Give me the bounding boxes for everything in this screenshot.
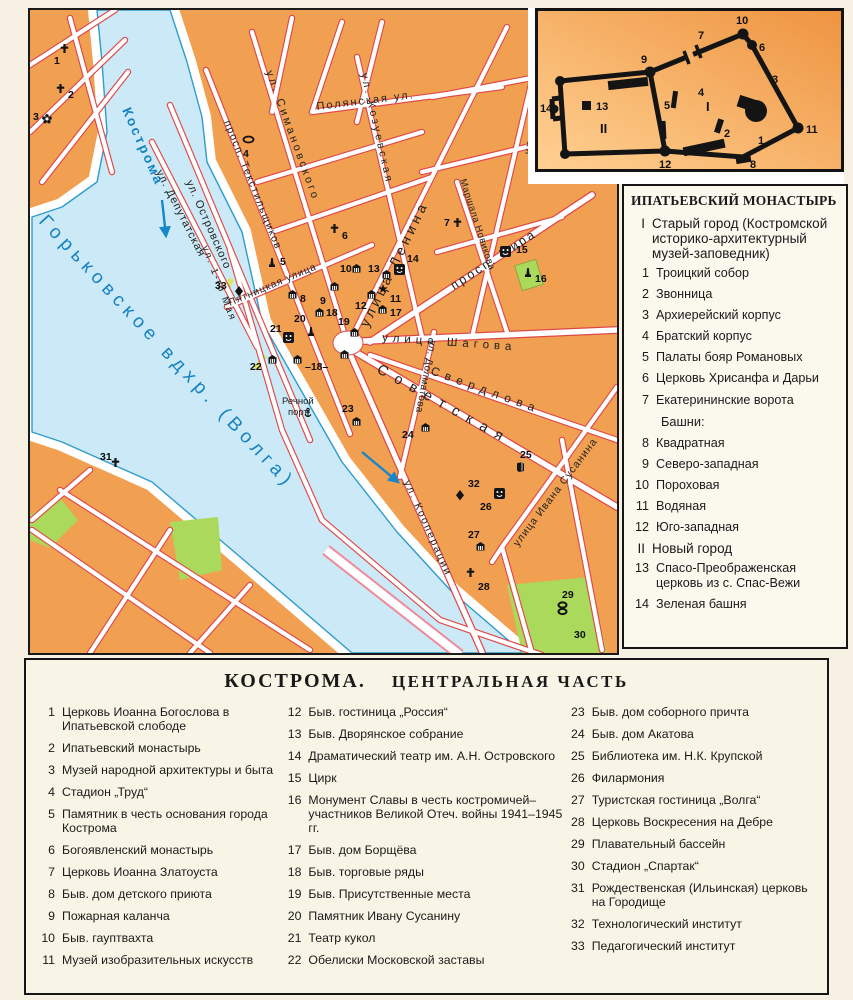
port-label-line1: Речной [282, 396, 314, 407]
svg-text:20: 20 [294, 313, 306, 325]
item-number: 19 [282, 887, 301, 901]
legend-item: 24Быв. дом Акатова [566, 727, 817, 741]
item-text: Быв. Дворянское собрание [308, 727, 463, 741]
legend-item: 9Северо-западная [629, 457, 839, 472]
monastery-items-3: 13Спасо-Преображенская церковь из с. Спа… [629, 561, 839, 611]
legend-item: 22Обелиски Московской заставы [282, 953, 565, 967]
item-text: Троицкий собор [656, 266, 749, 281]
legend-item: 2Ипатьевский монастырь [36, 741, 282, 755]
legend-column-1: 1Церковь Иоанна Богослова в Ипатьевской … [36, 705, 282, 975]
legend-item: 12Юго-западная [629, 520, 839, 535]
legend-item: 21Театр кукол [282, 931, 565, 945]
item-text: Быв. гауптвахта [62, 931, 153, 945]
svg-text:28: 28 [478, 581, 490, 593]
item-number: 32 [566, 917, 585, 931]
svg-text:12: 12 [659, 159, 671, 171]
item-number: 30 [566, 859, 585, 873]
svg-text:12: 12 [355, 300, 367, 312]
item-text: Филармония [592, 771, 665, 785]
svg-text:24: 24 [402, 429, 414, 441]
legend-column-3: 23Быв. дом соборного причта24Быв. дом Ак… [566, 705, 817, 975]
legend-item: 11Водяная [629, 499, 839, 514]
monastery-items-2: 8Квадратная9Северо-западная10Пороховая11… [629, 436, 839, 535]
legend-item: 4Стадион „Труд“ [36, 785, 282, 799]
item-text: Ипатьевский монастырь [62, 741, 201, 755]
item-number: 24 [566, 727, 585, 741]
svg-text:14: 14 [407, 253, 419, 265]
item-text: Монумент Славы в честь костромичей–участ… [308, 793, 565, 835]
item-text: Библиотека им. Н.К. Крупской [592, 749, 763, 763]
svg-text:5: 5 [280, 256, 286, 268]
svg-text:1: 1 [54, 55, 60, 67]
legend-item: 10Пороховая [629, 478, 839, 493]
item-number: 10 [629, 478, 649, 493]
item-number: 11 [36, 953, 55, 967]
item-number: 21 [282, 931, 301, 945]
item-number: 12 [629, 520, 649, 535]
item-number: 2 [36, 741, 55, 755]
item-text: Пожарная каланча [62, 909, 170, 923]
item-text: Квадратная [656, 436, 725, 451]
svg-text:23: 23 [342, 403, 354, 415]
item-text: Северо-западная [656, 457, 759, 472]
item-text: Быв. Присутственные места [308, 887, 470, 901]
svg-text:4: 4 [243, 148, 249, 160]
legend-group-new-town: II Новый город [629, 541, 839, 556]
legend-item: 26Филармония [566, 771, 817, 785]
item-text: Быв. дом Акатова [592, 727, 694, 741]
item-text: Спасо-Преображенская церковь из с. Спас-… [656, 561, 839, 590]
legend-column-2: 12Быв. гостиница „Россия“13Быв. Дворянск… [282, 705, 565, 975]
svg-text:30: 30 [574, 629, 586, 641]
svg-text:II: II [600, 121, 607, 136]
item-text: Педагогический институт [592, 939, 736, 953]
svg-text:6: 6 [342, 230, 348, 242]
group-text: Старый город (Костромской историко-архит… [652, 216, 839, 261]
legend-item: 15Цирк [282, 771, 565, 785]
svg-text:32: 32 [468, 478, 480, 490]
item-text: Быв. дом детского приюта [62, 887, 212, 901]
svg-text:7: 7 [444, 217, 450, 229]
item-text: Стадион „Спартак“ [592, 859, 699, 873]
svg-text:8: 8 [300, 293, 306, 305]
item-text: Плавательный бассейн [592, 837, 726, 851]
item-number: 12 [282, 705, 301, 719]
svg-text:27: 27 [468, 529, 480, 541]
item-text: Музей изобразительных искусств [62, 953, 253, 967]
item-number: 22 [282, 953, 301, 967]
legend-item: 3Архиерейский корпус [629, 308, 839, 323]
legend-item: 7Екатерининские ворота [629, 393, 839, 408]
item-number: 5 [629, 350, 649, 365]
item-number: 3 [36, 763, 55, 777]
title-city: КОСТРОМА. [224, 670, 366, 692]
city-legend: КОСТРОМА.ЦЕНТРАЛЬНАЯ ЧАСТЬ 1Церковь Иоан… [24, 658, 829, 995]
legend-item: 13Быв. Дворянское собрание [282, 727, 565, 741]
svg-text:15: 15 [516, 244, 528, 256]
svg-text:31: 31 [100, 451, 112, 463]
item-number: 4 [36, 785, 55, 799]
item-number: 23 [566, 705, 585, 719]
svg-text:10: 10 [340, 263, 352, 275]
item-number: 25 [566, 749, 585, 763]
svg-text:I: I [706, 99, 710, 114]
legend-item: 8Быв. дом детского приюта [36, 887, 282, 901]
svg-text:6: 6 [759, 42, 765, 54]
item-text: Зеленая башня [656, 597, 747, 612]
item-text: Цирк [308, 771, 336, 785]
item-number: 1 [629, 266, 649, 281]
item-number: 16 [282, 793, 301, 835]
svg-text:33: 33 [215, 280, 227, 292]
monastery-legend-title: ИПАТЬЕВСКИЙ МОНАСТЫРЬ [631, 193, 839, 209]
legend-item: 3Музей народной архитектуры и быта [36, 763, 282, 777]
item-text: Палаты бояр Романовых [656, 350, 803, 365]
item-text: Богоявленский монастырь [62, 843, 213, 857]
svg-text:21: 21 [270, 323, 282, 335]
item-text: Туристская гостиница „Волга“ [592, 793, 761, 807]
svg-text:2: 2 [68, 89, 74, 101]
item-number: 29 [566, 837, 585, 851]
legend-item: 5Палаты бояр Романовых [629, 350, 839, 365]
legend-item: 13Спасо-Преображенская церковь из с. Спа… [629, 561, 839, 590]
item-number: 11 [629, 499, 649, 514]
item-number: 8 [36, 887, 55, 901]
legend-item: 4Братский корпус [629, 329, 839, 344]
monastery-items-1: 1Троицкий собор2Звонница3Архиерейский ко… [629, 266, 839, 407]
item-text: Юго-западная [656, 520, 739, 535]
item-number: 28 [566, 815, 585, 829]
city-legend-title: КОСТРОМА.ЦЕНТРАЛЬНАЯ ЧАСТЬ [36, 670, 817, 693]
legend-item: 20Памятник Ивану Сусанину [282, 909, 565, 923]
legend-item: 32Технологический институт [566, 917, 817, 931]
item-number: 7 [36, 865, 55, 879]
svg-text:9: 9 [320, 295, 326, 307]
item-number: 10 [36, 931, 55, 945]
item-text: Драматический театр им. А.Н. Островского [308, 749, 555, 763]
legend-item: 6Церковь Хрисанфа и Дарьи [629, 371, 839, 386]
item-number: 14 [282, 749, 301, 763]
item-text: Быв. гостиница „Россия“ [308, 705, 447, 719]
svg-text:16: 16 [535, 273, 547, 285]
legend-item: 9Пожарная каланча [36, 909, 282, 923]
svg-text:–18–: –18– [305, 361, 329, 373]
svg-text:11: 11 [390, 293, 401, 305]
item-number: 17 [282, 843, 301, 857]
svg-text:2: 2 [724, 128, 730, 140]
svg-text:26: 26 [480, 501, 492, 513]
item-text: Памятник Ивану Сусанину [308, 909, 460, 923]
item-text: Музей народной архитектуры и быта [62, 763, 273, 777]
item-number: 14 [629, 597, 649, 612]
item-text: Церковь Иоанна Богослова в Ипатьевской с… [62, 705, 282, 733]
legend-item: 1Церковь Иоанна Богослова в Ипатьевской … [36, 705, 282, 733]
legend-item: 17Быв. дом Борщёва [282, 843, 565, 857]
item-number: 4 [629, 329, 649, 344]
item-text: Памятник в честь основания города Костро… [62, 807, 282, 835]
item-number: 13 [282, 727, 301, 741]
title-part: ЦЕНТРАЛЬНАЯ ЧАСТЬ [392, 672, 629, 691]
item-number: 9 [629, 457, 649, 472]
item-text: Технологический институт [592, 917, 742, 931]
monastery-inset: 1 2 3 4 5 6 7 8 9 10 11 12 13 14 I II [528, 8, 844, 184]
svg-text:11: 11 [806, 124, 818, 136]
item-number: 18 [282, 865, 301, 879]
legend-item: 29Плавательный бассейн [566, 837, 817, 851]
item-number: 5 [36, 807, 55, 835]
item-number: 9 [36, 909, 55, 923]
item-number: 6 [36, 843, 55, 857]
svg-text:18: 18 [326, 307, 338, 319]
item-number: 2 [629, 287, 649, 302]
svg-text:5: 5 [664, 100, 670, 112]
legend-item: 11Музей изобразительных искусств [36, 953, 282, 967]
item-number: 20 [282, 909, 301, 923]
item-number: 13 [629, 561, 649, 590]
monastery-legend: ИПАТЬЕВСКИЙ МОНАСТЫРЬ I Старый город (Ко… [622, 184, 848, 649]
legend-item: 25Библиотека им. Н.К. Крупской [566, 749, 817, 763]
item-text: Архиерейский корпус [656, 308, 781, 323]
legend-item: 31Рождественская (Ильинская) церковь на … [566, 881, 817, 909]
group-number: II [629, 541, 645, 556]
svg-text:10: 10 [736, 15, 748, 27]
svg-text:1: 1 [758, 135, 764, 147]
legend-item: 6Богоявленский монастырь [36, 843, 282, 857]
legend-item: 8Квадратная [629, 436, 839, 451]
legend-item: 33Педагогический институт [566, 939, 817, 953]
svg-text:7: 7 [698, 30, 704, 42]
item-text: Рождественская (Ильинская) церковь на Го… [592, 881, 817, 909]
city-legend-columns: 1Церковь Иоанна Богослова в Ипатьевской … [36, 705, 817, 975]
item-text: Екатерининские ворота [656, 393, 794, 408]
item-text: Водяная [656, 499, 706, 514]
item-text: Звонница [656, 287, 712, 302]
item-text: Пороховая [656, 478, 719, 493]
item-text: Быв. дом соборного причта [592, 705, 749, 719]
svg-text:8: 8 [750, 159, 756, 171]
legend-item: 10Быв. гауптвахта [36, 931, 282, 945]
towers-subhead: Башни: [661, 414, 839, 429]
item-number: 27 [566, 793, 585, 807]
legend-item: 1Троицкий собор [629, 266, 839, 281]
item-text: Церковь Хрисанфа и Дарьи [656, 371, 819, 386]
svg-text:14: 14 [540, 103, 553, 115]
svg-text:19: 19 [338, 316, 350, 328]
legend-item: 30Стадион „Спартак“ [566, 859, 817, 873]
legend-item: 27Туристская гостиница „Волга“ [566, 793, 817, 807]
item-text: Братский корпус [656, 329, 752, 344]
svg-text:13: 13 [368, 263, 380, 275]
legend-item: 14Зеленая башня [629, 597, 839, 612]
svg-text:13: 13 [596, 101, 608, 113]
svg-text:17: 17 [390, 307, 402, 319]
port-label-line2: порт [288, 407, 309, 418]
svg-text:9: 9 [641, 54, 647, 66]
item-number: 8 [629, 436, 649, 451]
svg-text:25: 25 [520, 449, 532, 461]
legend-group-old-town: I Старый город (Костромской историко-арх… [629, 216, 839, 261]
item-number: 26 [566, 771, 585, 785]
item-number: 7 [629, 393, 649, 408]
item-number: 1 [36, 705, 55, 733]
item-text: Обелиски Московской заставы [308, 953, 484, 967]
legend-item: 12Быв. гостиница „Россия“ [282, 705, 565, 719]
item-text: Церковь Иоанна Златоуста [62, 865, 218, 879]
item-number: 6 [629, 371, 649, 386]
group-text: Новый город [652, 541, 732, 556]
legend-item: 14Драматический театр им. А.Н. Островско… [282, 749, 565, 763]
item-text: Театр кукол [308, 931, 375, 945]
legend-item: 16Монумент Славы в честь костромичей–уча… [282, 793, 565, 835]
legend-item: 18Быв. торговые ряды [282, 865, 565, 879]
legend-item: 5Памятник в честь основания города Костр… [36, 807, 282, 835]
item-number: 33 [566, 939, 585, 953]
group-number: I [629, 216, 645, 261]
svg-text:29: 29 [562, 589, 574, 601]
svg-text:3: 3 [33, 111, 39, 123]
legend-item: 23Быв. дом соборного причта [566, 705, 817, 719]
legend-item: 19Быв. Присутственные места [282, 887, 565, 901]
monastery-inset-svg: 1 2 3 4 5 6 7 8 9 10 11 12 13 14 I II [535, 8, 844, 172]
item-text: Быв. дом Борщёва [308, 843, 416, 857]
svg-text:4: 4 [698, 87, 705, 99]
item-text: Быв. торговые ряды [308, 865, 424, 879]
item-text: Стадион „Труд“ [62, 785, 148, 799]
item-number: 15 [282, 771, 301, 785]
svg-text:3: 3 [772, 74, 778, 86]
legend-item: 7Церковь Иоанна Златоуста [36, 865, 282, 879]
svg-text:22: 22 [250, 361, 262, 373]
inset-background [538, 11, 841, 169]
legend-item: 2Звонница [629, 287, 839, 302]
item-text: Церковь Воскресения на Дебре [592, 815, 773, 829]
item-number: 31 [566, 881, 585, 909]
legend-item: 28Церковь Воскресения на Дебре [566, 815, 817, 829]
page: { "map": { "streets": { "kostroma": "Кос… [0, 0, 853, 1000]
item-number: 3 [629, 308, 649, 323]
